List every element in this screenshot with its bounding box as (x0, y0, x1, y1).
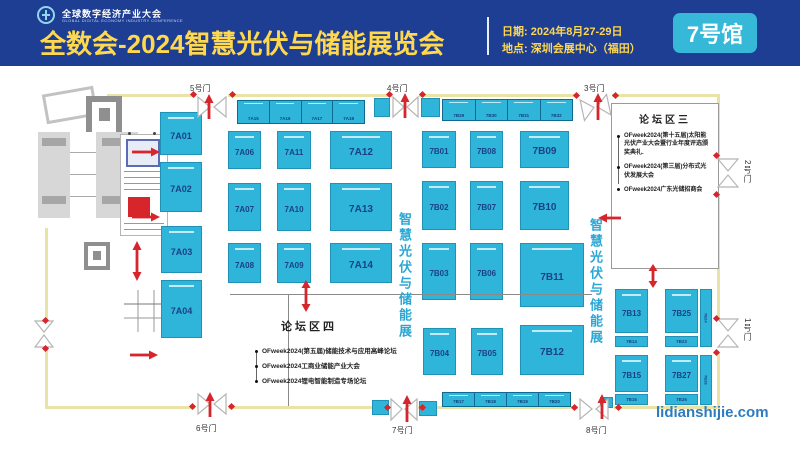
booth-7a01: 7A01 (160, 112, 202, 155)
expo-date: 日期: 2024年8月27-29日 (502, 24, 641, 41)
booth-7a11: 7A11 (277, 131, 311, 169)
wall-segment (45, 346, 48, 409)
forum-3-item: OFweek2024(第三届)分布式光伏发展大会 (624, 163, 712, 180)
booth-7b23: 7B23 (665, 336, 698, 347)
floor-plan-page: 全球数字经济产业大会 GLOBAL DIGITAL ECONOMY INDUST… (0, 0, 800, 450)
flow-arrow-right (132, 211, 160, 223)
header-divider (487, 17, 489, 55)
booth-7b19: 7B19 (507, 393, 538, 406)
structure-bar (42, 138, 66, 146)
forum-4-item: OFweek2024锂电智能制造专场论坛 (262, 377, 432, 386)
flow-arrow-up (401, 395, 413, 423)
flow-arrow-up (596, 394, 608, 420)
forum-area-3: 论坛区三 OFweek2024(第十五届)太阳能光伏产业大会暨行业年度评选颁奖典… (611, 103, 719, 269)
booth-7b31: 7B31 (508, 100, 540, 120)
structure-corridor (70, 132, 96, 218)
booth-7b30: 7B30 (476, 100, 508, 120)
booth-7b08: 7B08 (470, 131, 503, 168)
flow-arrow-vertical (647, 264, 659, 288)
booth-7b01: 7B01 (422, 131, 456, 168)
booth-7a13: 7A13 (330, 183, 392, 231)
wall-segment (45, 406, 195, 409)
booth-7a03: 7A03 (161, 226, 202, 273)
booth-7b15: 7B15 (615, 355, 648, 392)
booth-7b07: 7B07 (470, 181, 503, 230)
forum-3-list: OFweek2024(第十五届)太阳能光伏产业大会暨行业年度评选颁奖典礼. OF… (624, 132, 712, 194)
booth-7b06: 7B06 (470, 243, 503, 300)
flow-arrow-right (132, 146, 160, 158)
booth-7b03: 7B03 (422, 243, 456, 300)
header-bar: 全球数字经济产业大会 GLOBAL DIGITAL ECONOMY INDUST… (0, 0, 800, 66)
wall-segment (717, 353, 720, 409)
booth-7b32: 7B32 (541, 100, 573, 120)
wall-segment (419, 94, 578, 97)
forum-4-list: OFweek2024(第五届)储能技术与应用高峰论坛 OFweek2024工商业… (262, 347, 432, 392)
booth-7b11: 7B11 (520, 243, 584, 307)
booth-7a15: 7A15 (238, 101, 269, 123)
hall-number-badge: 7号馆 (673, 13, 757, 53)
structure-bar (42, 196, 66, 204)
booth-7b28: 7B28 (700, 355, 712, 405)
booth-7b18: 7B18 (475, 393, 506, 406)
booth-7b29: 7B29 (443, 100, 475, 120)
flow-arrow-up (592, 93, 604, 121)
structure-shaft-small (84, 242, 110, 270)
vertical-banner-text: 智慧光伏与储能展 (586, 218, 605, 346)
column-dot (153, 132, 156, 135)
booth-7a07: 7A07 (228, 183, 261, 231)
flow-arrow-vertical (300, 280, 312, 312)
booth-7b13: 7B13 (615, 289, 648, 333)
booth-7a06: 7A06 (228, 131, 261, 169)
booth-7b02: 7B02 (422, 181, 456, 230)
booth-7b10: 7B10 (520, 181, 569, 230)
booth-7a17: 7A17 (302, 101, 333, 123)
forum-4-item: OFweek2024(第五届)储能技术与应用高峰论坛 (262, 347, 432, 356)
forum-4-item: OFweek2024工商业储能产业大会 (262, 362, 432, 371)
booth-7b09: 7B09 (520, 131, 569, 168)
booth-7a18: 7A18 (333, 101, 364, 123)
door-7-label: 7号门 (392, 425, 412, 436)
expo-venue: 地点: 深圳会展中心（福田） (502, 41, 641, 58)
booth-7b25: 7B25 (665, 289, 698, 333)
wall-segment (228, 406, 390, 409)
side-door-icon (34, 320, 54, 348)
forum-3-title: 论坛区三 (612, 111, 718, 126)
booth-strip-bottom: 7B17 7B18 7B19 7B20 (442, 392, 571, 407)
booth-7b12: 7B12 (520, 325, 584, 375)
booth-7a09: 7A09 (277, 243, 311, 283)
door-6-label: 6号门 (196, 423, 216, 434)
red-diamond (573, 92, 580, 99)
expo-title: 全数会-2024智慧光伏与储能展览会 (40, 24, 490, 61)
flow-arrow-up (204, 392, 216, 418)
booth-7a10: 7A10 (277, 183, 311, 231)
site-watermark: lidianshijie.com (656, 404, 769, 421)
door-2-icon (717, 158, 739, 188)
flow-arrow-up (399, 93, 411, 119)
booth-7b27: 7B27 (665, 355, 698, 392)
door-1-icon (717, 318, 739, 348)
booth-7b16: 7B16 (615, 394, 648, 405)
wall-segment (612, 94, 720, 97)
flow-arrow-up (203, 94, 215, 120)
booth-strip-top-left: 7A15 7A16 7A17 7A18 (237, 100, 365, 124)
booth-7b14: 7B14 (615, 336, 648, 347)
booth-7b20: 7B20 (539, 393, 570, 406)
wall-segment (45, 228, 48, 320)
booth-7a02: 7A02 (160, 162, 202, 212)
column-dot (128, 132, 131, 135)
door-2-label: 2号门 (742, 160, 753, 183)
booth-7a08: 7A08 (228, 243, 261, 283)
booth-7b05: 7B05 (471, 328, 503, 375)
wall-segment (228, 94, 392, 97)
flow-arrow-vertical (131, 241, 143, 281)
kiosk-square (421, 98, 440, 117)
booth-7b17: 7B17 (443, 393, 474, 406)
vertical-banner-text: 智慧光伏与储能展 (395, 212, 414, 340)
forum-3-item: OFweek2024(第十五届)太阳能光伏产业大会暨行业年度评选颁奖典礼. (624, 132, 712, 157)
booth-7a12: 7A12 (330, 131, 392, 169)
booth-7b24: 7B24 (700, 289, 712, 347)
booth-7a04: 7A04 (161, 280, 202, 338)
date-venue-block: 日期: 2024年8月27-29日 地点: 深圳会展中心（福田） (502, 24, 641, 58)
booth-7a16: 7A16 (270, 101, 301, 123)
flow-arrow-right (130, 349, 158, 361)
door-8-label: 8号门 (586, 425, 606, 436)
forum-3-item: OFweek2024广东光储招商会 (624, 186, 712, 194)
booth-7a14: 7A14 (330, 243, 392, 283)
forum-4-title: 论坛区四 (281, 318, 337, 334)
booth-strip-top-right: 7B29 7B30 7B31 7B32 (442, 99, 573, 121)
conference-name-en: GLOBAL DIGITAL ECONOMY INDUSTRY CONFEREN… (62, 18, 183, 23)
door-1-label: 1号门 (742, 318, 753, 341)
conference-logo-icon (37, 6, 55, 24)
kiosk-square (374, 98, 390, 117)
